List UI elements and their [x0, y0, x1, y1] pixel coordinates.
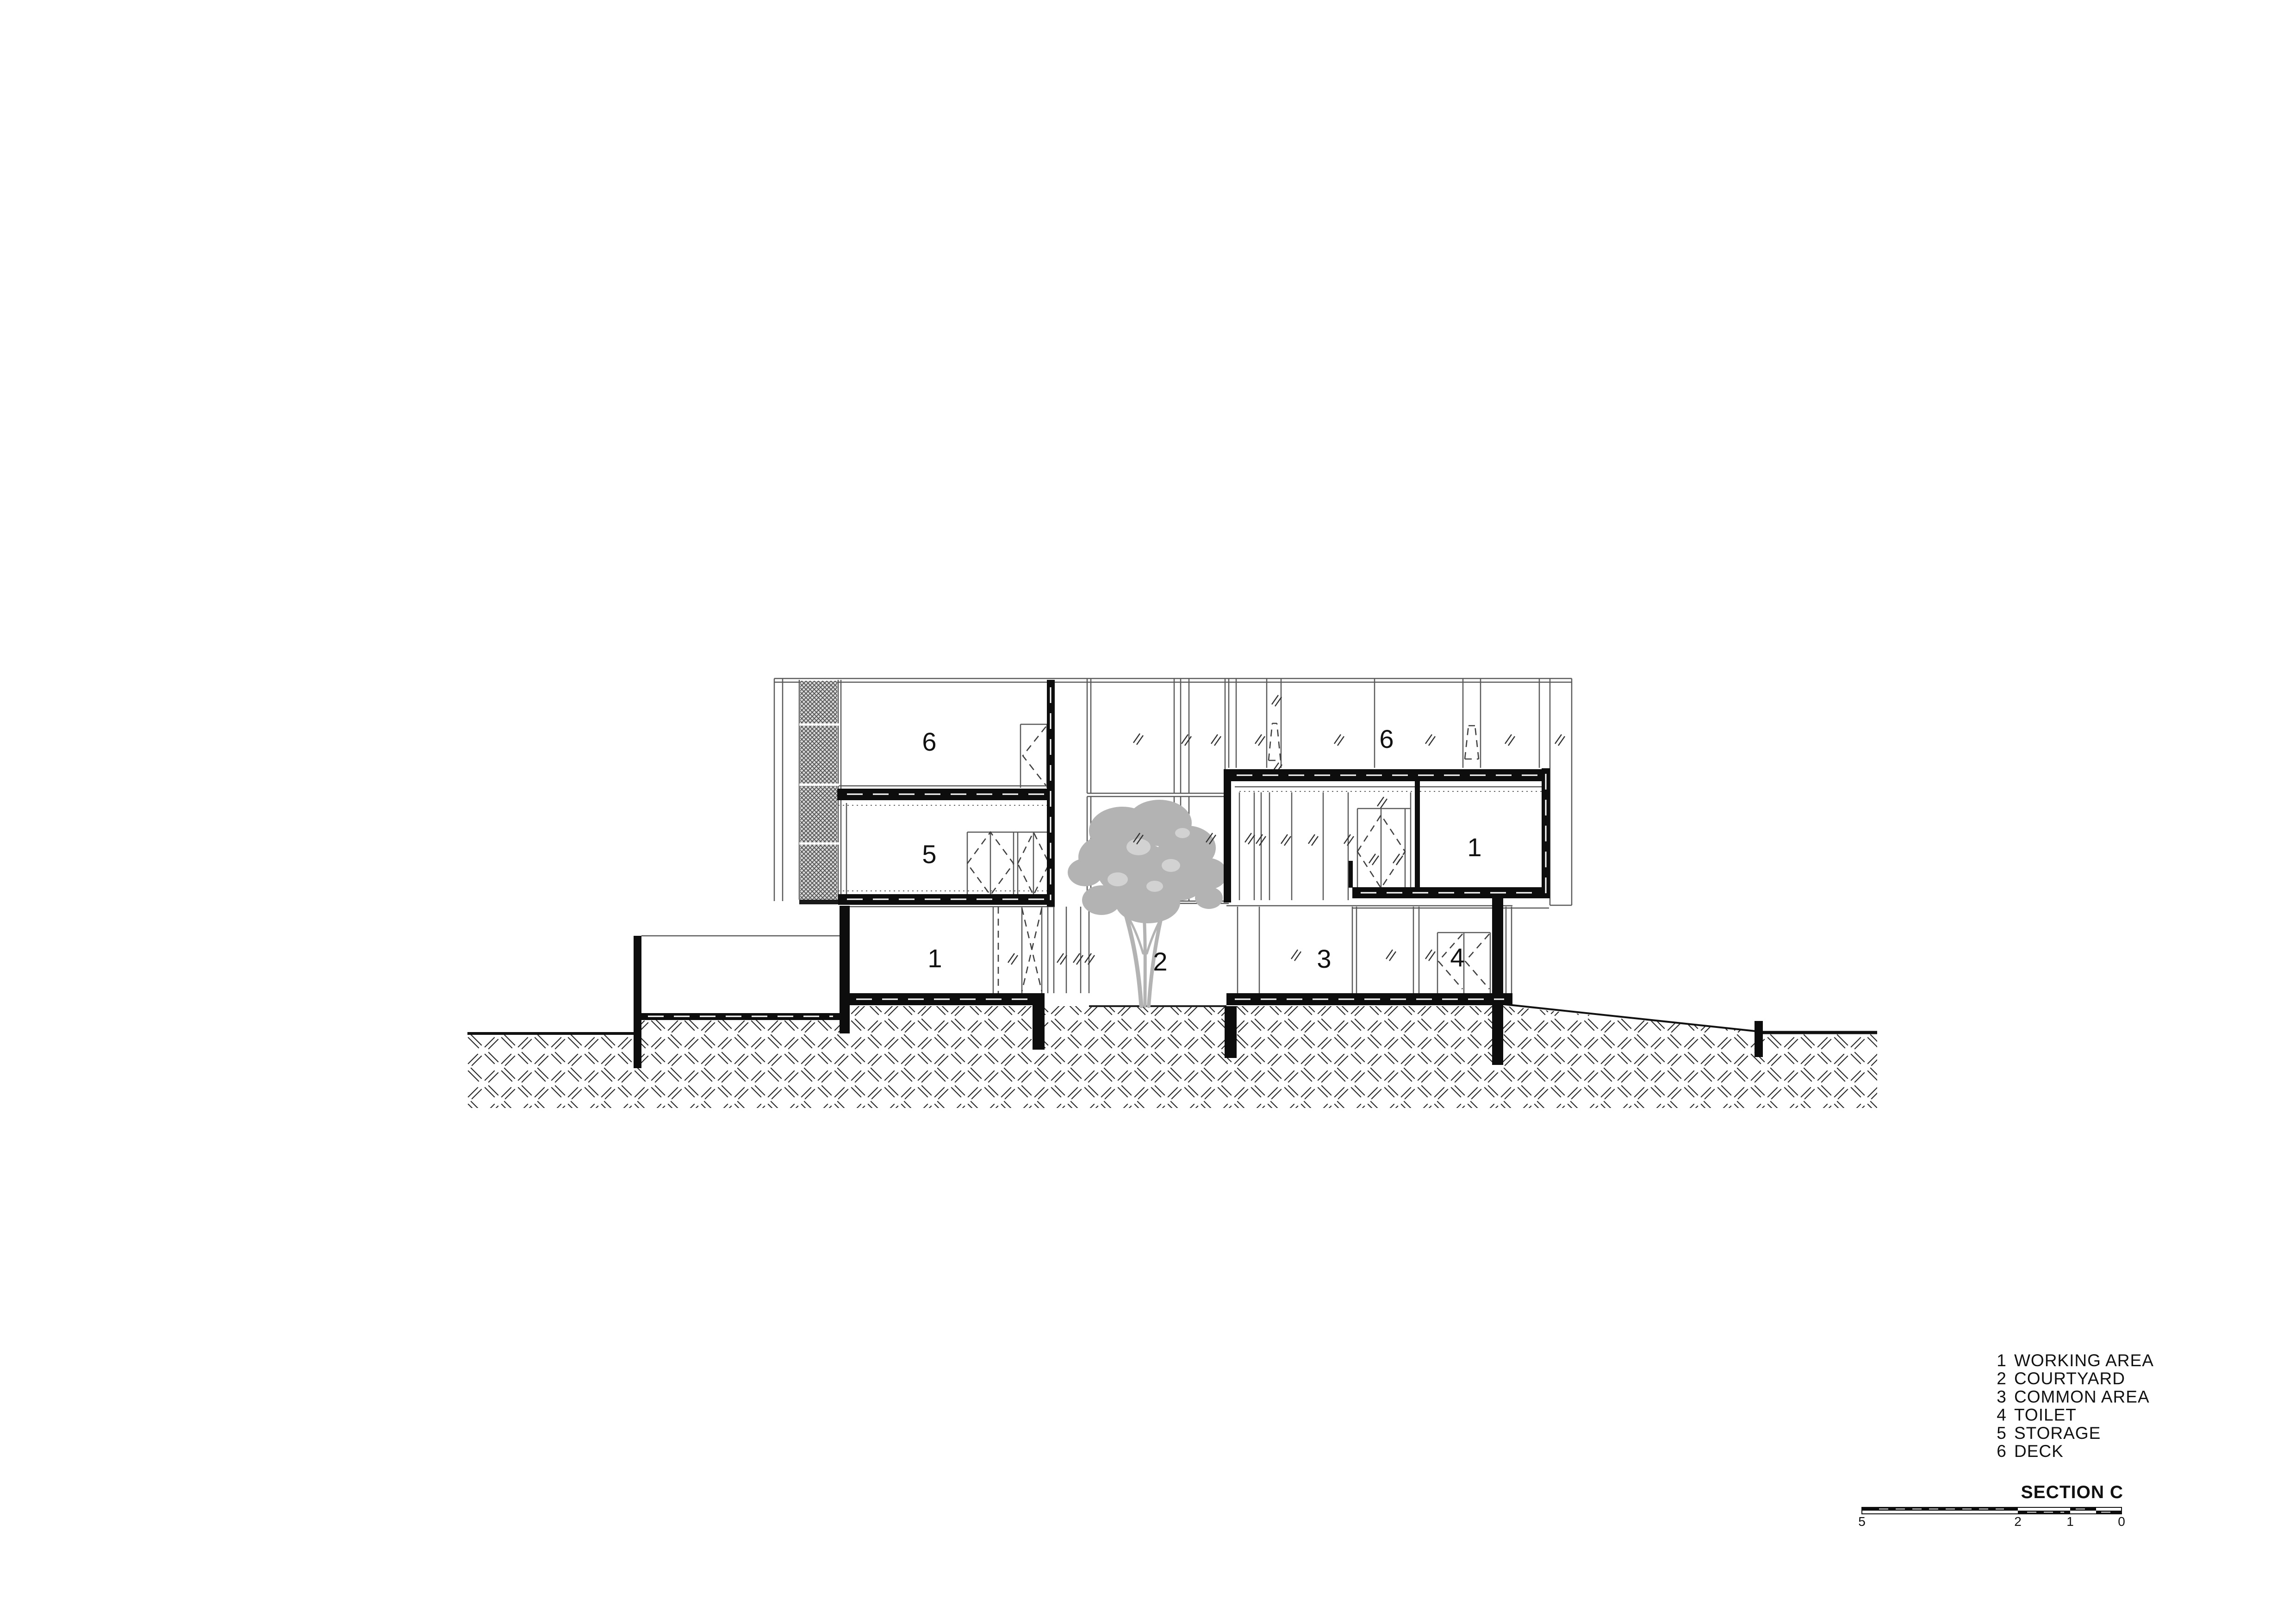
fence-post: [1755, 1021, 1763, 1057]
section-title: SECTION C: [2021, 1482, 2123, 1502]
room-label-deck-right: 6: [1379, 724, 1394, 753]
legend-label-4: TOILET: [2014, 1406, 2077, 1425]
mesh-bottom-cap: [799, 900, 838, 904]
legend-number-3: 3: [1997, 1387, 2007, 1406]
vent-panel-2: [1465, 726, 1479, 759]
legend-label-5: STORAGE: [2014, 1424, 2101, 1443]
legend-number-6: 6: [1997, 1442, 2007, 1461]
annex-wall: [634, 936, 641, 1045]
grade-post-left: [634, 1045, 641, 1068]
legend-label-3: COMMON AREA: [2014, 1387, 2150, 1406]
legend-number-1: 1: [1997, 1351, 2007, 1370]
courtyard-column-footing: [1225, 1006, 1237, 1058]
room-label-deck-left: 6: [922, 727, 936, 756]
legend-number-2: 2: [1997, 1369, 2007, 1388]
legend-label-6: DECK: [2014, 1442, 2064, 1461]
scale-label-0: 0: [2118, 1514, 2125, 1529]
courtyard-column: [1224, 769, 1231, 902]
legend-number-4: 4: [1997, 1406, 2007, 1425]
room-label-courtyard: 2: [1153, 947, 1167, 976]
room-label-storage: 5: [922, 840, 936, 869]
scale-bar: 5210: [1858, 1507, 2125, 1529]
legend: 1WORKING AREA2COURTYARD3COMMON AREA4TOIL…: [1997, 1351, 2154, 1461]
room-label-toilet: 4: [1450, 943, 1464, 972]
tree-canopy: [1068, 800, 1227, 923]
scale-label-5: 5: [1858, 1514, 1866, 1529]
scale-bar-labels: 5210: [1858, 1514, 2125, 1529]
footing-left: [1033, 1005, 1045, 1050]
legend-number-5: 5: [1997, 1424, 2007, 1443]
scale-label-1: 1: [2066, 1514, 2074, 1529]
scale-label-2: 2: [2014, 1514, 2022, 1529]
ground-door-swing-x: [1022, 908, 1042, 991]
foundation-wall-right: [1492, 898, 1503, 1065]
ground-left-door-frames: [993, 907, 1089, 993]
mesh-screen: [799, 681, 839, 904]
left-block-ground-wall: [840, 906, 850, 1033]
storage-door-frames: [967, 832, 1049, 894]
vent-panel-1: [1269, 723, 1281, 760]
room-label-working-area-ground: 1: [927, 944, 942, 973]
upper-room-left-wall: [1415, 781, 1420, 888]
drawing-sheet: 65123461 1WORKING AREA2COURTYARD3COMMON …: [0, 0, 2296, 1624]
legend-label-2: COURTYARD: [2014, 1369, 2125, 1388]
legend-label-1: WORKING AREA: [2014, 1351, 2154, 1370]
upper-room-wall-stub: [1349, 861, 1353, 888]
deck-door-swing: [1023, 727, 1046, 785]
room-label-common-area: 3: [1317, 944, 1331, 973]
courtyard-tree: [1068, 800, 1227, 1006]
section-drawing: 65123461 1WORKING AREA2COURTYARD3COMMON …: [0, 0, 2296, 1624]
common-area-upper-mullions: [1239, 792, 1348, 900]
storage-floor-slab: [838, 894, 1055, 905]
deck-left-slab: [837, 789, 1055, 800]
room-label-working-area-upper: 1: [1467, 833, 1481, 862]
deck-door-frame: [1020, 724, 1047, 788]
